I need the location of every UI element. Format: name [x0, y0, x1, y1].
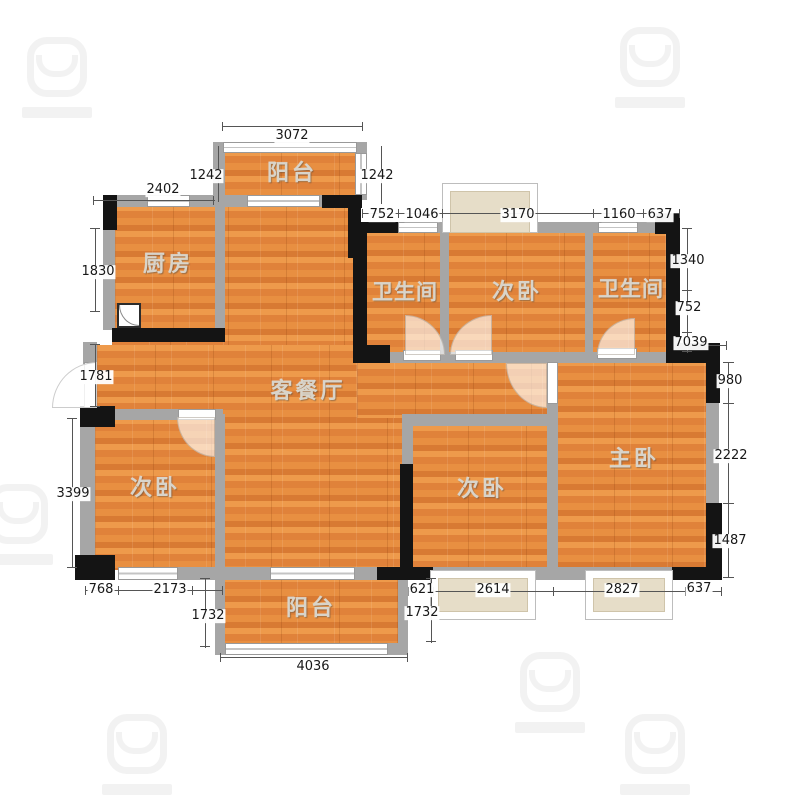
dimension-tick [398, 209, 399, 218]
dimension-line [93, 200, 215, 201]
dim-label: 1732 [404, 606, 439, 620]
dim-label: 1340 [670, 254, 705, 268]
dimension-tick [90, 228, 100, 229]
dim-label: 1487 [712, 534, 747, 548]
dimension-tick [442, 209, 443, 218]
dimension-tick [682, 351, 692, 352]
dimension-line [408, 591, 722, 592]
dim-label: 1160 [601, 208, 636, 222]
floor-plan: 3072 1242 1242 2402 752 1046 3170 1160 6… [0, 0, 800, 800]
wall-black-segment [672, 567, 722, 580]
dimension-tick [407, 653, 408, 662]
watermark-logo [0, 484, 56, 580]
dimension-tick [723, 403, 734, 404]
room-label-bedroom-left: 次卧 [130, 470, 180, 502]
dim-label: 4036 [295, 660, 330, 674]
dim-label: 2827 [604, 583, 639, 597]
dim-label: 3170 [500, 208, 535, 222]
dim-label: 1732 [190, 609, 225, 623]
wall-black-segment [75, 555, 115, 580]
dimension-tick [362, 209, 363, 218]
dimension-tick [682, 290, 692, 291]
dim-label: 7039 [673, 336, 708, 350]
dim-label: 621 [409, 583, 436, 597]
dim-label: 2402 [145, 183, 180, 197]
dimension-tick [721, 587, 722, 596]
room-label-master-bedroom: 主卧 [609, 441, 659, 473]
dimension-tick [723, 362, 734, 363]
watermark-logo [512, 652, 588, 748]
dimension-tick [200, 646, 210, 647]
room-label-kitchen: 厨房 [143, 246, 193, 278]
wall-black-segment [353, 345, 390, 363]
dimension-tick [90, 344, 100, 345]
watermark-logo [617, 714, 693, 800]
watermark-logo [612, 27, 688, 123]
dimension-tick [93, 196, 94, 205]
dimension-tick [222, 122, 223, 131]
wall-segment [585, 230, 593, 355]
wall-black-segment [400, 464, 413, 570]
dim-label: 1830 [80, 265, 115, 279]
dim-label: 768 [88, 583, 115, 597]
window [398, 222, 438, 233]
dimension-tick [362, 122, 363, 131]
room-label-living-dining: 客餐厅 [270, 373, 345, 405]
dim-label: 752 [369, 208, 396, 222]
watermark-logo [99, 714, 175, 800]
dim-label: 3399 [55, 487, 90, 501]
dimension-line [222, 126, 362, 127]
dimension-tick [643, 209, 644, 218]
window [225, 643, 388, 655]
door-leaf-master [547, 362, 558, 404]
dim-label: 1046 [404, 208, 439, 222]
dimension-tick [90, 311, 100, 312]
room-label-bathroom-right: 卫生间 [598, 273, 664, 303]
dimension-tick [682, 332, 692, 333]
dim-label: 1242 [359, 169, 394, 183]
dimension-tick [67, 567, 77, 568]
room-label-balcony-bottom: 阳台 [286, 590, 336, 622]
window-balcony-door [270, 567, 355, 580]
dim-label: 752 [676, 301, 703, 315]
dimension-tick [222, 586, 223, 595]
dimension-tick [67, 418, 77, 419]
watermark-logo [19, 37, 95, 133]
wall-segment [440, 230, 449, 355]
dim-label: 980 [717, 374, 744, 388]
dimension-tick [192, 586, 193, 595]
wall-segment [402, 414, 413, 464]
dimension-tick [553, 587, 554, 596]
kitchen-door-icon [117, 303, 141, 328]
wall-black-segment [357, 222, 398, 233]
dimension-tick [90, 406, 100, 407]
dimension-tick [726, 341, 727, 350]
room-label-bathroom-left: 卫生间 [372, 276, 438, 306]
dim-label: 1781 [78, 370, 113, 384]
wall-black-segment [80, 406, 115, 427]
window [223, 142, 357, 153]
wall-black-segment [112, 328, 225, 342]
room-label-bedroom-top: 次卧 [492, 274, 542, 306]
dim-label: 637 [686, 582, 713, 596]
dimension-tick [593, 209, 594, 218]
window [118, 567, 178, 580]
dim-label: 2222 [713, 449, 748, 463]
dimension-tick [426, 578, 436, 579]
wall-black-segment [353, 230, 367, 363]
room-label-bedroom-middle: 次卧 [457, 471, 507, 503]
wall-segment [215, 414, 225, 570]
dimension-tick [220, 653, 221, 662]
dim-label: 2173 [152, 583, 187, 597]
dim-label: 3072 [274, 129, 309, 143]
dimension-tick [682, 228, 692, 229]
dimension-tick [723, 577, 734, 578]
dim-label: 1242 [188, 169, 223, 183]
dimension-tick [213, 196, 214, 205]
dimension-tick [426, 641, 436, 642]
dimension-tick [85, 586, 86, 595]
window [598, 222, 638, 233]
dimension-tick [200, 578, 210, 579]
dim-label: 637 [647, 208, 674, 222]
dimension-tick [679, 209, 680, 218]
room-label-balcony-top: 阳台 [267, 155, 317, 187]
dimension-tick [723, 503, 734, 504]
window-balcony-door [247, 195, 320, 207]
dimension-tick [118, 586, 119, 595]
dimension-line [220, 657, 408, 658]
wall-segment [402, 414, 553, 426]
dim-label: 2614 [475, 583, 510, 597]
